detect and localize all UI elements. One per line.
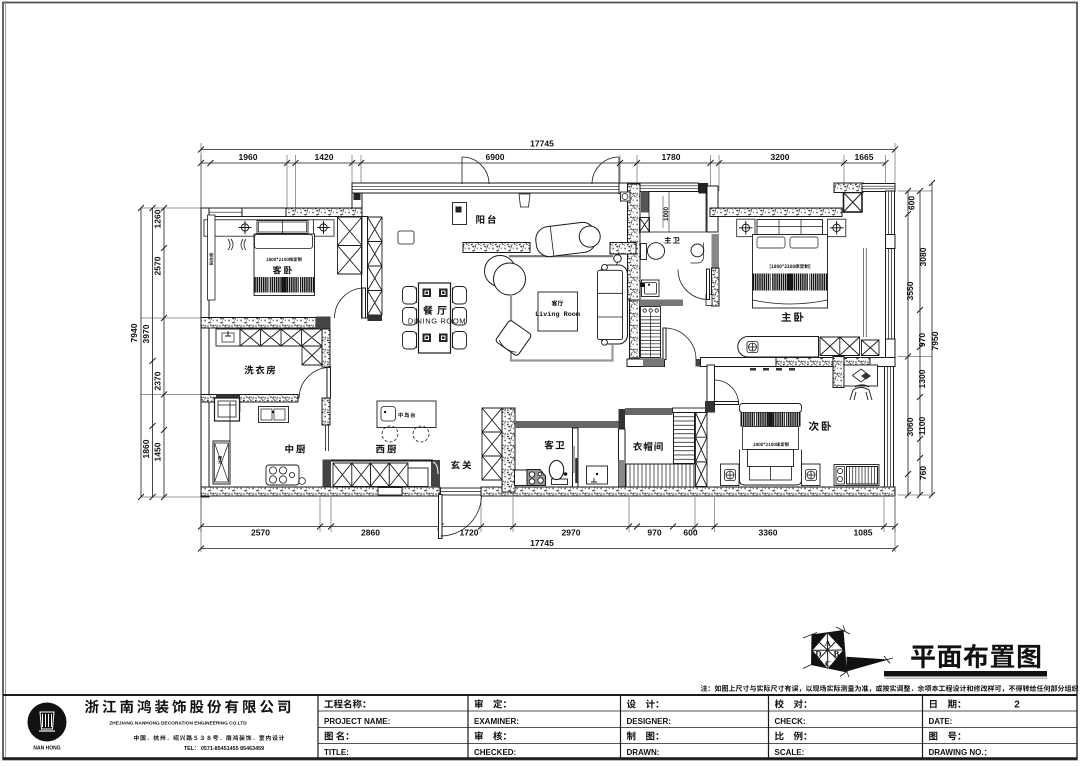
svg-text:17745: 17745 bbox=[530, 538, 554, 548]
svg-text:600: 600 bbox=[907, 196, 917, 210]
svg-text:17745: 17745 bbox=[530, 139, 554, 149]
svg-text:CHECK:: CHECK: bbox=[775, 717, 806, 726]
svg-text:ZHEJIANG NANHONG DECORATION EN: ZHEJIANG NANHONG DECORATION ENGINEERING … bbox=[109, 721, 247, 727]
svg-text:3360: 3360 bbox=[759, 528, 778, 538]
svg-text:PROJECT NAME:: PROJECT NAME: bbox=[324, 717, 390, 726]
svg-text:TITLE:: TITLE: bbox=[324, 748, 349, 757]
svg-text:1085: 1085 bbox=[854, 528, 873, 538]
svg-text:2860: 2860 bbox=[361, 528, 380, 538]
svg-text:DESIGNER:: DESIGNER: bbox=[627, 717, 671, 726]
svg-text:A: A bbox=[825, 638, 832, 648]
svg-text:600: 600 bbox=[683, 528, 697, 538]
svg-text:970: 970 bbox=[917, 333, 927, 347]
svg-text:SCALE:: SCALE: bbox=[775, 748, 805, 757]
svg-text:1450: 1450 bbox=[153, 442, 163, 461]
svg-text:7950: 7950 bbox=[930, 331, 940, 350]
svg-text:B: B bbox=[834, 649, 840, 659]
svg-text:CHECKED:: CHECKED: bbox=[474, 748, 516, 757]
svg-text:760: 760 bbox=[918, 466, 928, 480]
svg-text:NAN HONG: NAN HONG bbox=[33, 746, 60, 752]
svg-text:2570: 2570 bbox=[153, 256, 163, 275]
svg-text:C: C bbox=[825, 659, 831, 669]
svg-text:3060: 3060 bbox=[905, 417, 915, 436]
svg-text:3970: 3970 bbox=[141, 324, 151, 343]
svg-text:1960: 1960 bbox=[239, 152, 258, 162]
svg-text:1665: 1665 bbox=[855, 152, 874, 162]
svg-text:3080: 3080 bbox=[918, 247, 928, 266]
svg-text:1300: 1300 bbox=[917, 369, 927, 388]
svg-text:3200: 3200 bbox=[771, 152, 790, 162]
svg-text:EXAMINER:: EXAMINER: bbox=[474, 717, 519, 726]
svg-text:DRAWN:: DRAWN: bbox=[627, 748, 660, 757]
svg-text:3550: 3550 bbox=[905, 281, 915, 300]
svg-text:7940: 7940 bbox=[129, 323, 139, 342]
svg-text:2570: 2570 bbox=[251, 528, 270, 538]
svg-text:2: 2 bbox=[1014, 700, 1020, 711]
svg-text:6900: 6900 bbox=[486, 152, 505, 162]
svg-text:1860: 1860 bbox=[141, 439, 151, 458]
svg-text:1780: 1780 bbox=[662, 152, 681, 162]
svg-text:2370: 2370 bbox=[153, 371, 163, 390]
svg-text:1100: 1100 bbox=[917, 417, 927, 436]
svg-text:1720: 1720 bbox=[460, 528, 479, 538]
svg-text:DINING ROOM: DINING ROOM bbox=[408, 317, 466, 326]
svg-text:1420: 1420 bbox=[315, 152, 334, 162]
svg-text:DATE:: DATE: bbox=[929, 717, 953, 726]
svg-text:Living Room: Living Room bbox=[535, 311, 580, 319]
svg-text:2970: 2970 bbox=[562, 528, 581, 538]
svg-text:D: D bbox=[815, 649, 821, 659]
svg-text:TEL： 0571-85451455 85463459: TEL： 0571-85451455 85463459 bbox=[184, 746, 264, 752]
svg-text:1260: 1260 bbox=[153, 209, 163, 228]
svg-text:970: 970 bbox=[647, 528, 661, 538]
svg-text:DRAWING NO.：: DRAWING NO.： bbox=[929, 748, 992, 757]
